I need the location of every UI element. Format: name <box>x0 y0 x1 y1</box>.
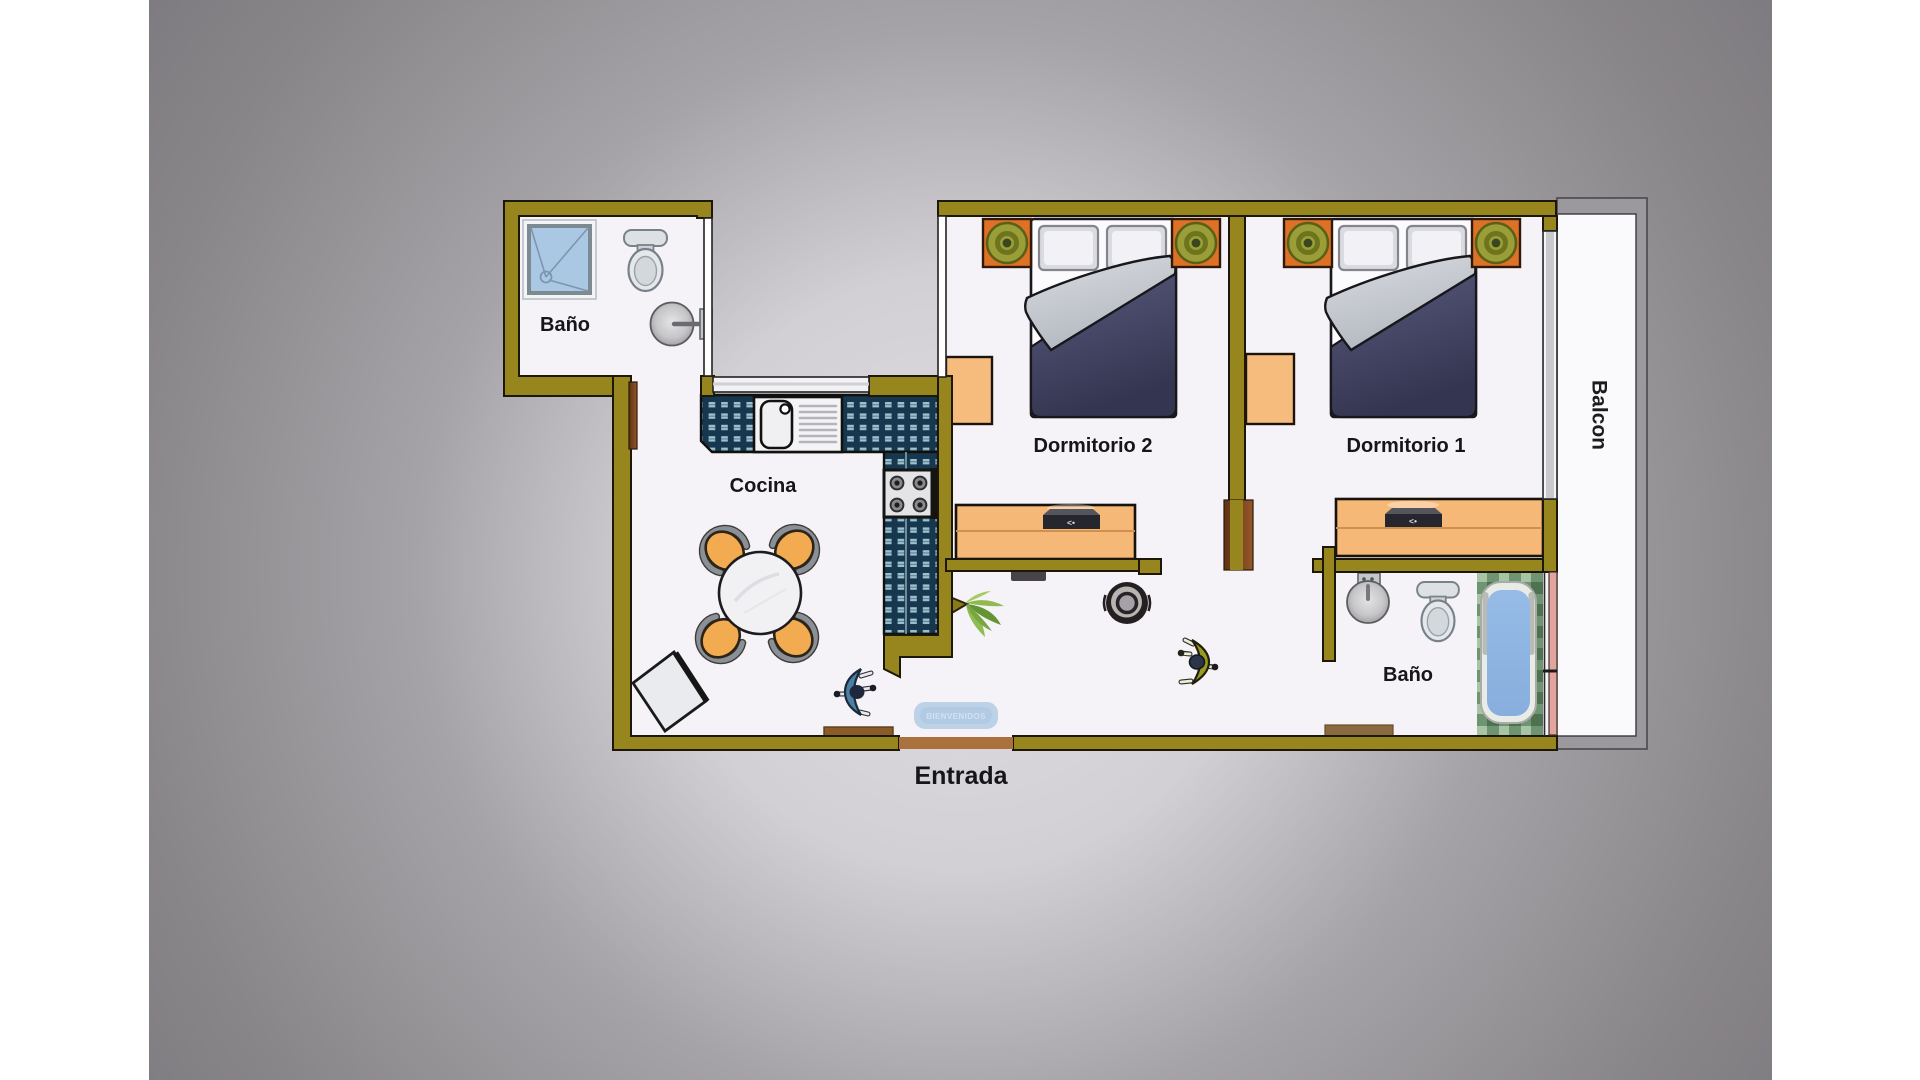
svg-text:Baño: Baño <box>540 314 590 336</box>
svg-text:<•: <• <box>1067 518 1075 528</box>
svg-text:Cocina: Cocina <box>730 475 798 497</box>
svg-text:Dormitorio 2: Dormitorio 2 <box>1034 435 1153 457</box>
svg-text:<•: <• <box>1409 516 1417 526</box>
svg-text:Dormitorio 1: Dormitorio 1 <box>1347 435 1466 457</box>
svg-text:Entrada: Entrada <box>914 762 1008 790</box>
svg-text:Baño: Baño <box>1383 664 1433 686</box>
svg-text:Balcon: Balcon <box>1588 380 1611 450</box>
svg-text:BIENVENIDOS: BIENVENIDOS <box>926 712 986 721</box>
